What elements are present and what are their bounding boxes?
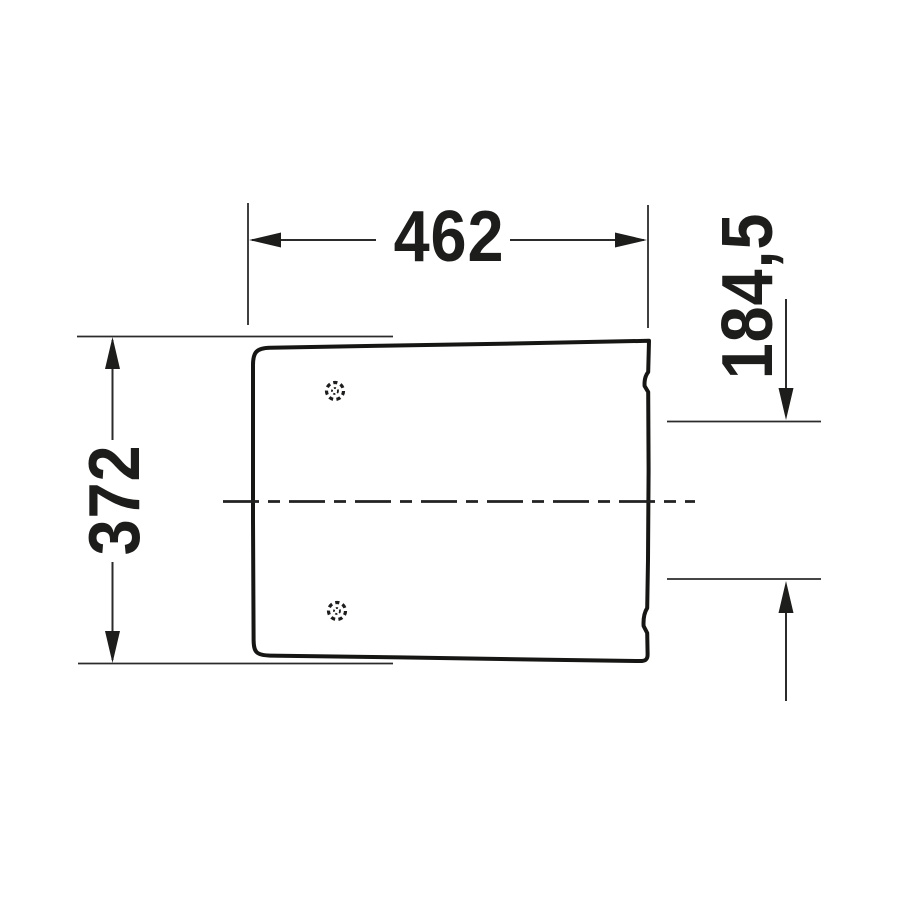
offset-dimension: 184,5 <box>667 213 821 701</box>
technical-drawing: 462 372 184,5 <box>0 0 900 900</box>
offset-dimension-label: 184,5 <box>707 213 788 380</box>
hinge-hole-top-inner-circle <box>332 388 338 394</box>
hinge-hole-bottom-outer-circle <box>329 603 346 620</box>
width-dimension-label: 462 <box>394 196 505 277</box>
height-arrowhead-up-icon <box>105 337 120 369</box>
width-arrowhead-right-icon <box>615 233 647 248</box>
hinge-hole-bottom <box>329 603 346 620</box>
width-dimension: 462 <box>248 196 648 328</box>
offset-arrowhead-up-icon <box>779 581 794 613</box>
height-arrowhead-down-icon <box>105 631 120 663</box>
hinge-hole-top <box>327 383 344 400</box>
width-arrowhead-left-icon <box>249 233 281 248</box>
offset-arrowhead-down-icon <box>779 388 794 420</box>
hinge-hole-top-outer-circle <box>327 383 344 400</box>
hinge-hole-bottom-inner-circle <box>334 608 340 614</box>
drawing-canvas: 462 372 184,5 <box>0 0 900 900</box>
height-dimension-label: 372 <box>74 445 155 556</box>
